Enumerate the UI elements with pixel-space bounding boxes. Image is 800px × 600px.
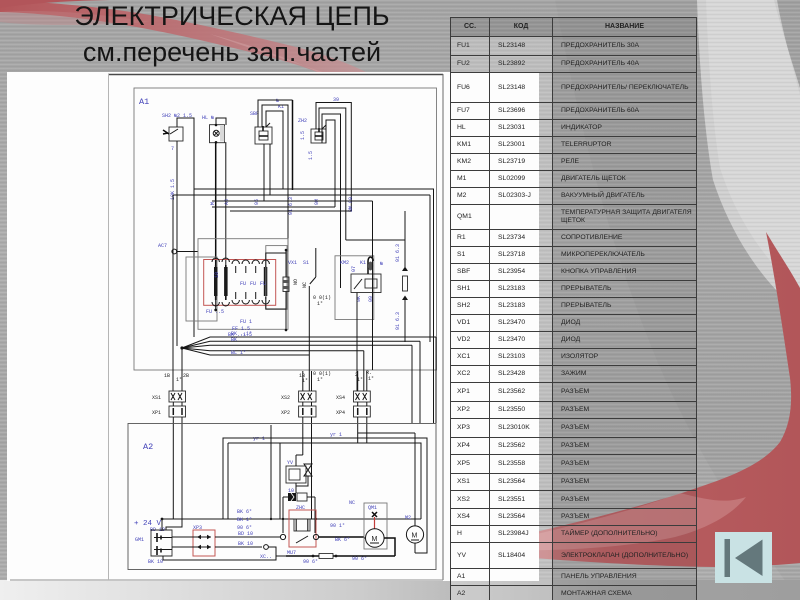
- svg-text:FU: FU: [240, 281, 246, 287]
- svg-text:AC7: AC7: [158, 243, 167, 249]
- svg-text:FU: FU: [260, 281, 266, 287]
- svg-text:BK 6°: BK 6°: [237, 509, 252, 515]
- svg-text:1°: 1°: [176, 377, 182, 383]
- svg-text:ZH2: ZH2: [298, 118, 307, 124]
- svg-text:1°: 1°: [368, 376, 374, 382]
- svg-text:A6: A6: [224, 199, 230, 205]
- svg-text:XP4: XP4: [336, 410, 345, 416]
- svg-text:GM1: GM1: [135, 537, 144, 543]
- svg-text:91 6.3: 91 6.3: [395, 312, 401, 330]
- svg-text:10: 10: [214, 272, 220, 278]
- svg-text:7: 7: [171, 146, 174, 152]
- svg-text:K1: K1: [360, 260, 366, 266]
- svg-text:MU7: MU7: [287, 550, 296, 556]
- svg-text:FU 1: FU 1: [240, 319, 252, 325]
- svg-text:BL 1°: BL 1°: [231, 350, 246, 356]
- svg-text:95: 95: [254, 199, 260, 205]
- svg-text:BK: BK: [231, 337, 237, 343]
- svg-text:M: M: [412, 533, 418, 540]
- svg-text:BD 10: BD 10: [238, 531, 253, 537]
- svg-text:A2: A2: [143, 442, 153, 452]
- svg-text:NC: NC: [302, 282, 308, 288]
- svg-text:BK 6°: BK 6°: [335, 537, 350, 543]
- svg-text:1°: 1°: [317, 377, 323, 383]
- svg-text:9M: 9M: [314, 199, 320, 205]
- svg-text:M: M: [210, 202, 216, 205]
- svg-text:yr 1: yr 1: [253, 436, 265, 442]
- svg-text:XP1: XP1: [152, 410, 161, 416]
- svg-text:VX1: VX1: [288, 260, 297, 266]
- svg-text:91 6.3: 91 6.3: [395, 244, 401, 262]
- svg-text:NO: NO: [293, 279, 299, 285]
- svg-text:XC..: XC..: [260, 554, 272, 560]
- svg-text:1°: 1°: [317, 301, 323, 307]
- svg-text:S1: S1: [303, 260, 309, 266]
- svg-text:HL №: HL №: [202, 115, 214, 121]
- svg-text:91 6.3: 91 6.3: [288, 197, 294, 215]
- svg-text:BM 90: BM 90: [348, 197, 354, 212]
- svg-text:09: 09: [368, 296, 374, 302]
- svg-text:07: 07: [351, 266, 357, 272]
- svg-text:QM1: QM1: [368, 505, 377, 511]
- svg-text:1.5: 1.5: [308, 151, 314, 160]
- svg-text:yr 1: yr 1: [330, 432, 342, 438]
- svg-text:A1: A1: [139, 97, 149, 107]
- svg-text:90 6°: 90 6°: [352, 556, 367, 562]
- svg-text:XS2: XS2: [281, 395, 290, 401]
- svg-text:M2: M2: [405, 515, 411, 521]
- svg-text:M: M: [372, 536, 378, 543]
- svg-text:XS4: XS4: [336, 395, 345, 401]
- svg-text:YV: YV: [287, 460, 293, 466]
- svg-text:1.5: 1.5: [300, 131, 306, 140]
- svg-text:FU ..5: FU ..5: [206, 309, 224, 315]
- svg-text:NC: NC: [349, 500, 355, 506]
- svg-text:FU: FU: [250, 281, 256, 287]
- svg-text:BK 10: BK 10: [238, 541, 253, 547]
- svg-text:90 1°: 90 1°: [330, 523, 345, 529]
- svg-text:XS1: XS1: [152, 395, 161, 401]
- svg-text:BK 10: BK 10: [148, 559, 163, 565]
- svg-text:BK 1°: BK 1°: [237, 517, 252, 523]
- svg-text:№: №: [380, 261, 383, 267]
- svg-text:90 6°: 90 6°: [303, 559, 318, 565]
- svg-text:KM2: KM2: [340, 260, 349, 266]
- svg-text:1B: 1B: [164, 373, 170, 379]
- svg-text:90 6°: 90 6°: [237, 525, 252, 531]
- svg-text:XP2: XP2: [281, 410, 290, 416]
- svg-text:2B: 2B: [183, 373, 189, 379]
